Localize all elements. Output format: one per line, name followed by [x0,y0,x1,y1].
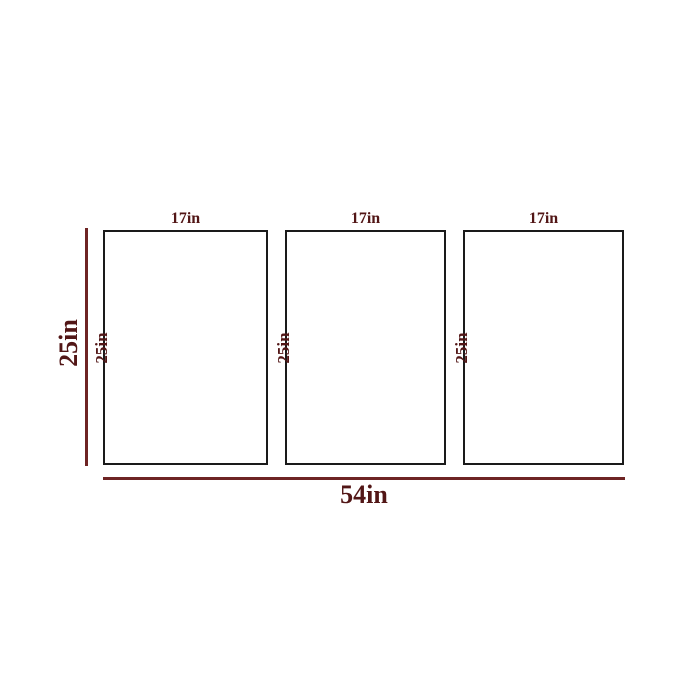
panel-1-width-label: 17in [105,211,266,227]
panel-3-height-label: 25in [453,326,471,370]
panel-3: 17in 25in [463,230,624,465]
total-width-label: 54in [103,482,625,508]
panel-1: 17in 25in [103,230,268,465]
panel-3-width-label: 17in [465,211,622,227]
total-height-dimension-line [85,228,88,466]
total-height-label: 25in [56,303,82,383]
dimension-diagram: 25in 54in 17in 25in 17in 25in 17in 25in [0,0,700,700]
panel-2-width-label: 17in [287,211,444,227]
panel-2-height-label: 25in [275,326,293,370]
panel-2: 17in 25in [285,230,446,465]
panel-1-height-label: 25in [93,326,111,370]
